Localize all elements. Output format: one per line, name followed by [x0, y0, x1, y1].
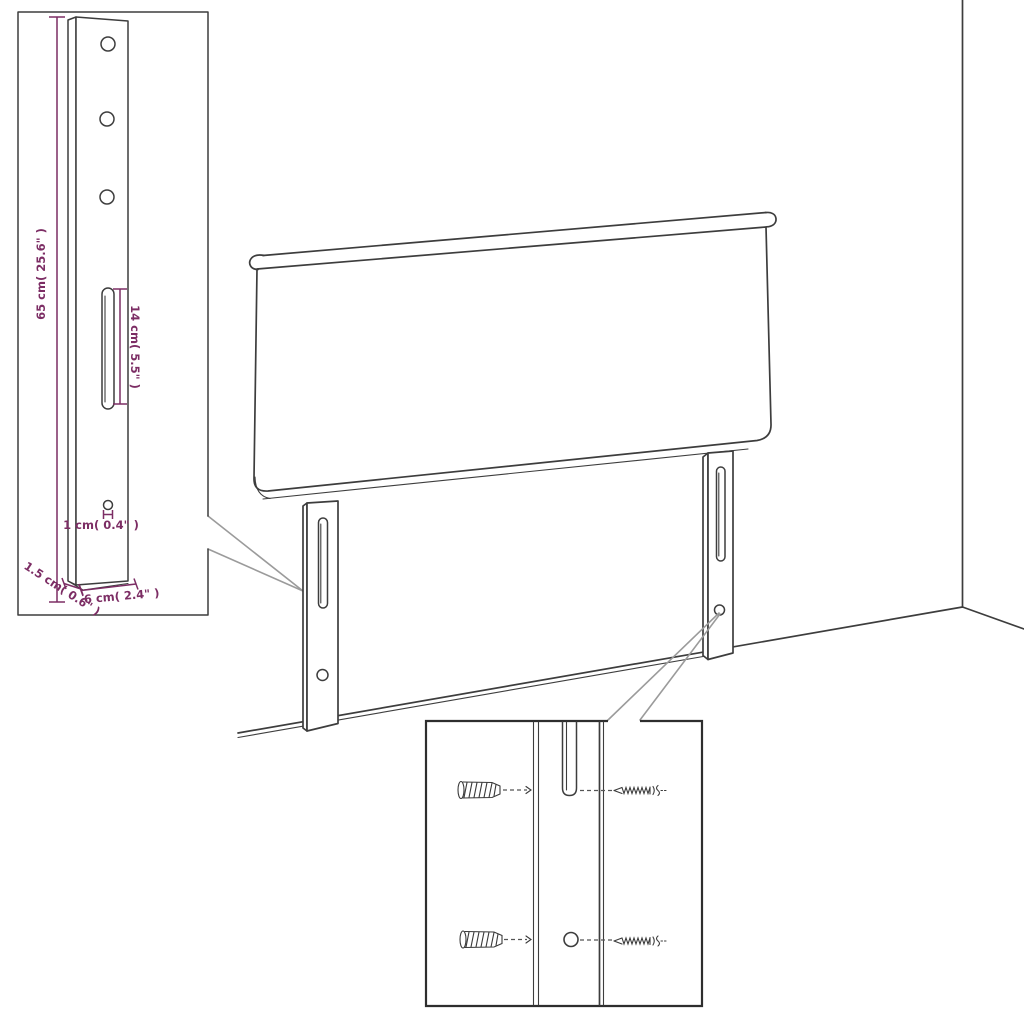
floor-line-left	[238, 607, 963, 733]
headboard-panel	[250, 212, 776, 499]
left-leg-screw-hole	[317, 670, 328, 681]
bracket-hole-1	[101, 37, 115, 51]
screw-detail-box	[426, 721, 702, 1006]
headboard-face	[254, 227, 771, 491]
bracket-height-label: 65 cm( 25.6" )	[34, 228, 48, 320]
right-leg-slot	[717, 467, 726, 561]
headboard-top-roll-right-curl	[766, 212, 777, 226]
bracket-side-view	[68, 17, 128, 590]
detail-box-fill	[426, 721, 702, 1006]
diagram-canvas: 65 cm( 25.6" ) 14 cm( 5.5" ) 1 cm( 0.4" …	[0, 0, 1024, 1024]
floor-line-right	[963, 607, 1024, 629]
bracket-slot	[102, 288, 114, 409]
bracket-inset: 65 cm( 25.6" ) 14 cm( 5.5" ) 1 cm( 0.4" …	[18, 12, 208, 618]
dimension-65cm: 65 cm( 25.6" )	[34, 17, 65, 602]
left-leg	[303, 501, 338, 731]
headboard-top-roll-left-curl	[250, 255, 264, 269]
slot-length-label: 14 cm( 5.5" )	[128, 305, 142, 389]
bracket-hole-2	[100, 112, 114, 126]
bracket-hole-3	[100, 190, 114, 204]
left-leg-slot	[319, 518, 328, 608]
bracket-side-face	[68, 17, 76, 585]
inset-leader-lines	[208, 516, 303, 591]
right-leg	[703, 451, 733, 660]
bracket-small-hole	[104, 501, 113, 510]
hole-diameter-label: 1 cm( 0.4" )	[63, 518, 139, 532]
